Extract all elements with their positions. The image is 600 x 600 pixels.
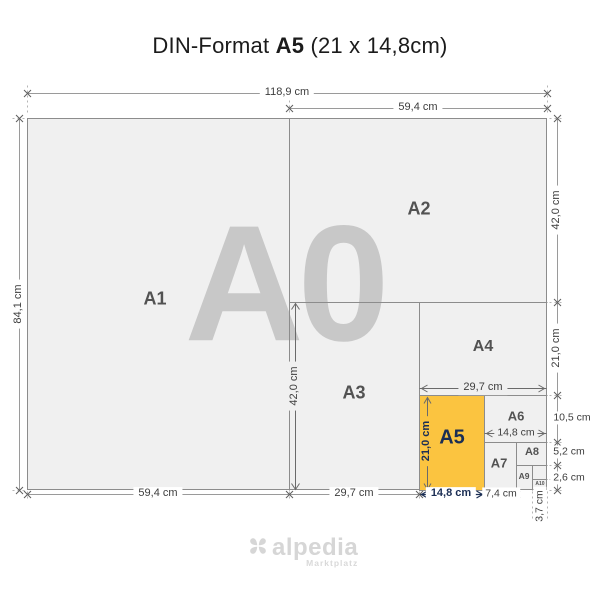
- paper-label-a3: A3: [342, 383, 365, 404]
- logo-tagline: Marktplatz: [306, 559, 358, 568]
- dim-a5-height-label: 21,0 cm: [420, 416, 434, 466]
- dim-a7-width-label: 7,4 cm: [482, 487, 520, 500]
- paper-label-a6: A6: [508, 409, 525, 424]
- paper-label-a9: A9: [519, 471, 530, 481]
- dim-a10-height-label: 2,6 cm: [550, 471, 588, 484]
- logo-brand-text: alpedia: [272, 534, 358, 561]
- paper-label-a8: A8: [525, 446, 539, 458]
- dim-a6-width-label: 14,8 cm: [494, 426, 537, 439]
- dim-full-width-label: 118,9 cm: [260, 86, 314, 100]
- dim-a3-width-label: 29,7 cm: [329, 487, 378, 501]
- paper-label-a5: A5: [439, 427, 465, 450]
- paper-label-a1: A1: [143, 289, 166, 310]
- alpedia-logo-icon: [248, 536, 268, 556]
- dim-a3-height-label: 42,0 cm: [288, 361, 302, 410]
- dim-a2-height-label: 42,0 cm: [550, 185, 564, 234]
- dim-a6-height-label: 10,5 cm: [550, 411, 593, 424]
- dim-a5-width-label: 14,8 cm: [426, 487, 476, 501]
- logo-brand: alpedia Marktplatz: [272, 536, 358, 560]
- dim-a1-width-label: 59,4 cm: [133, 487, 182, 501]
- dim-a4-width-label: 29,7 cm: [458, 381, 507, 395]
- paper-label-a7: A7: [491, 456, 508, 471]
- paper-label-a10: A10: [535, 481, 544, 487]
- dim-a4-height-label: 21,0 cm: [550, 323, 564, 372]
- dim-full-height-label: 84,1 cm: [12, 279, 26, 328]
- din-format-infographic: DIN-Format A5 (21 x 14,8cm) A0: [0, 0, 600, 600]
- paper-label-a4: A4: [473, 338, 493, 356]
- dim-a8-height-label: 5,2 cm: [550, 445, 588, 458]
- alpedia-logo: alpedia Marktplatz: [248, 536, 358, 560]
- paper-label-a2: A2: [407, 199, 430, 220]
- dim-a10-width-label: 3,7 cm: [533, 487, 546, 525]
- dim-a2-width-label: 59,4 cm: [393, 101, 442, 115]
